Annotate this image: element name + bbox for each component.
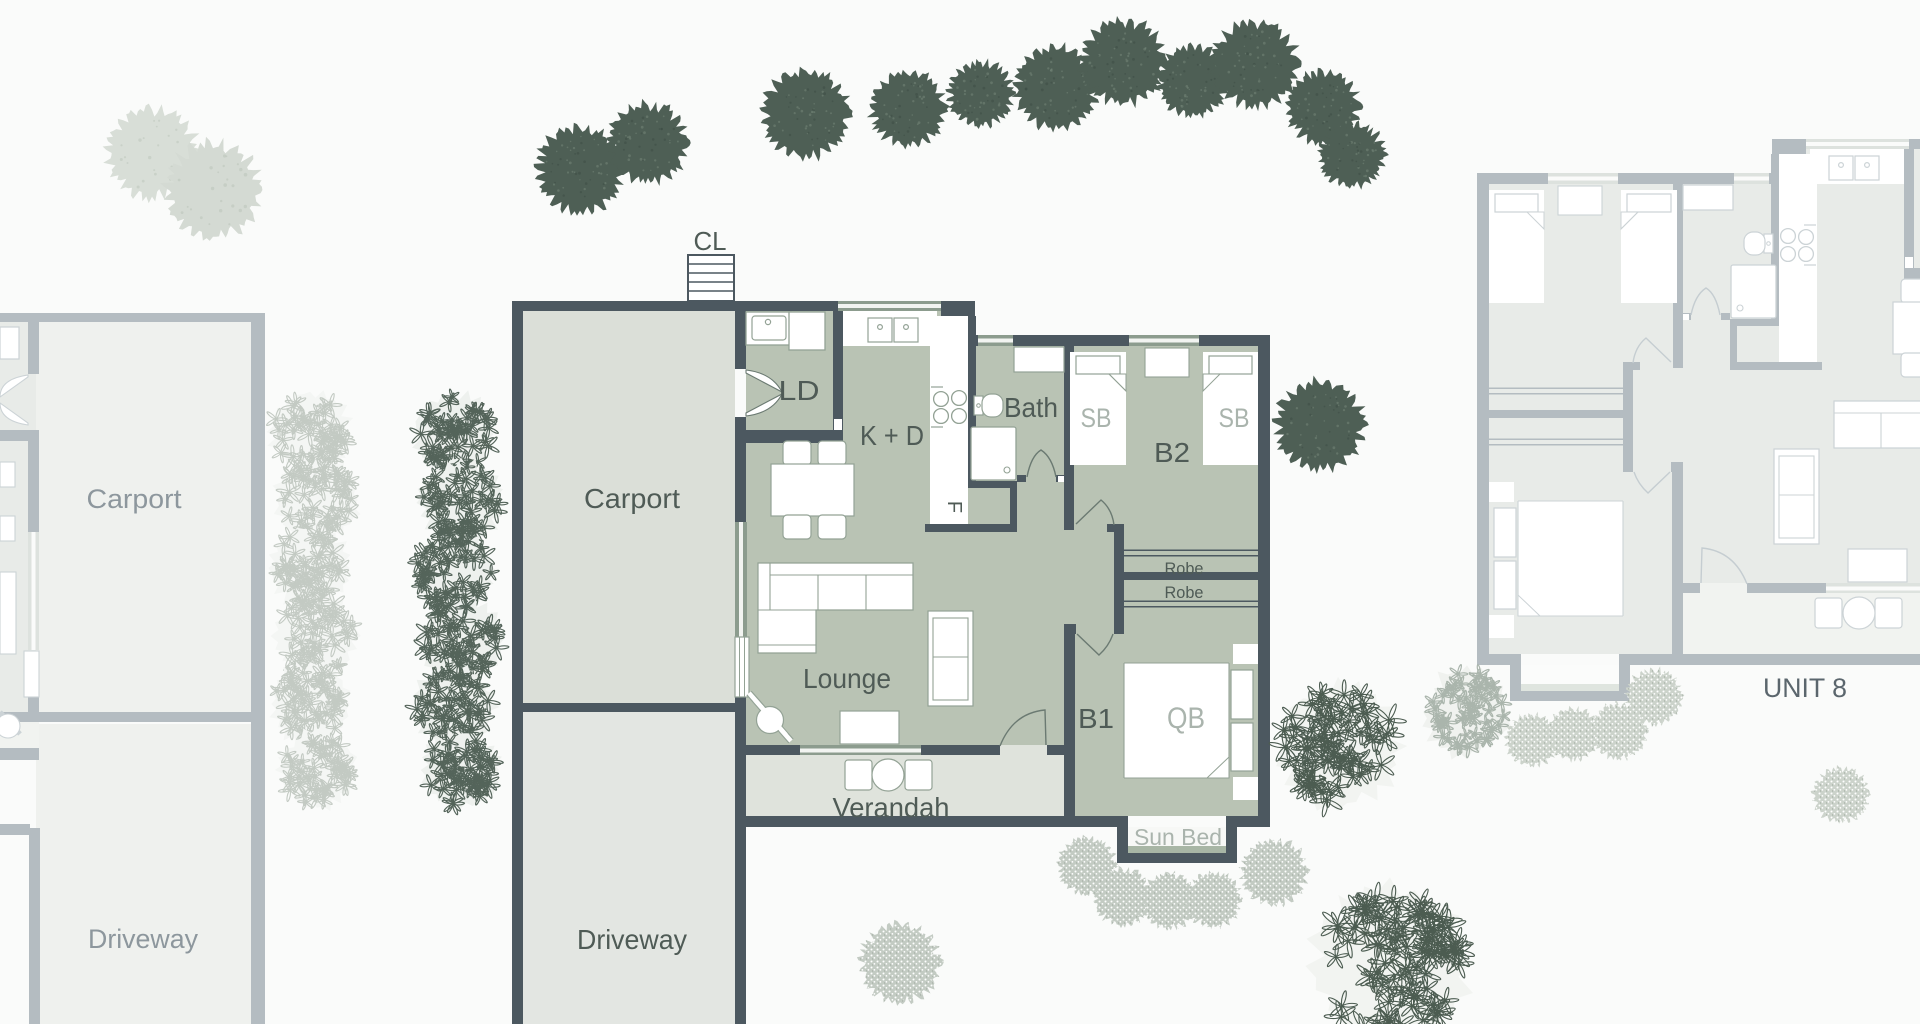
svg-text:Robe: Robe [1165,584,1204,602]
svg-text:Driveway: Driveway [577,924,687,955]
svg-text:LD: LD [779,375,820,406]
svg-text:Bath: Bath [1004,392,1058,423]
svg-text:B2: B2 [1154,437,1190,468]
svg-text:Sun Bed: Sun Bed [1134,824,1222,850]
svg-text:B1: B1 [1078,703,1114,734]
svg-text:SB: SB [1081,403,1112,433]
svg-text:Verandah: Verandah [833,792,950,823]
svg-text:Robe: Robe [1165,560,1204,578]
svg-text:Carport: Carport [87,484,183,514]
svg-text:QB: QB [1167,702,1205,735]
svg-text:Driveway: Driveway [88,924,198,954]
svg-text:SB: SB [1219,403,1250,433]
svg-text:UNIT 8: UNIT 8 [1763,673,1847,703]
svg-text:F: F [943,501,965,513]
svg-text:CL: CL [694,226,727,256]
svg-text:Lounge: Lounge [803,663,891,694]
svg-text:K + D: K + D [860,420,924,451]
svg-text:Carport: Carport [584,483,680,514]
